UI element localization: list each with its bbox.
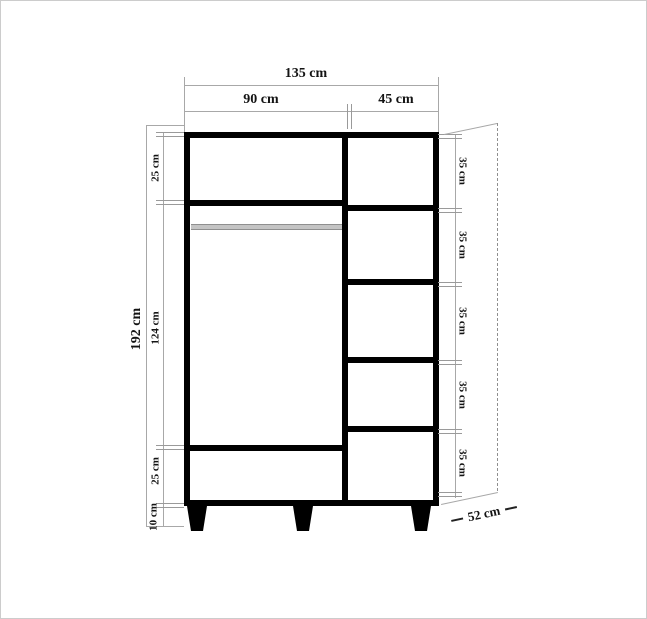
label-depth: 52 cm	[466, 503, 501, 525]
dim-tick	[156, 445, 184, 446]
dim-tick	[347, 104, 348, 129]
label-shelf-4: 35 cm	[457, 381, 468, 409]
leg-left	[187, 506, 207, 531]
dim-tick	[438, 433, 462, 434]
drawer-divider	[188, 445, 344, 451]
dim-tick	[438, 212, 462, 213]
wardrobe-dimension-diagram: 135 cm 90 cm 45 cm 192 cm 25 cm 124 cm 2…	[0, 0, 647, 619]
depth-dashed-line	[497, 123, 498, 491]
dim-tick	[438, 282, 462, 283]
dim-line-total-height	[146, 125, 147, 526]
leg-right	[411, 506, 431, 531]
depth-edge-bottom	[441, 492, 498, 505]
dim-tick	[438, 360, 462, 361]
top-shelf-divider	[188, 200, 344, 206]
dim-tick	[438, 496, 462, 497]
label-total-width: 135 cm	[246, 67, 366, 81]
label-shelf-5: 35 cm	[457, 449, 468, 477]
hanging-rod	[191, 224, 342, 230]
dim-tick	[438, 134, 462, 135]
label-depth-group: 52 cm	[450, 499, 519, 529]
label-top-compartment: 25 cm	[151, 154, 162, 182]
label-bottom-compartment: 25 cm	[151, 457, 162, 485]
dim-tick	[438, 492, 462, 493]
dim-line-section-widths	[184, 111, 439, 112]
shelf-divider-4	[346, 426, 435, 432]
dim-tick	[156, 204, 184, 205]
dim-tick	[438, 364, 462, 365]
dim-tick	[438, 208, 462, 209]
dim-tick	[351, 104, 352, 129]
dim-tick	[156, 449, 184, 450]
label-shelf-1: 35 cm	[457, 157, 468, 185]
label-middle-compartment: 124 cm	[151, 311, 162, 344]
dim-tick	[156, 507, 184, 508]
dim-tick	[438, 138, 462, 139]
label-right-section-width: 45 cm	[341, 93, 451, 107]
shelf-divider-1	[346, 205, 435, 211]
depth-dash-left	[451, 517, 463, 521]
label-left-section-width: 90 cm	[206, 93, 316, 107]
depth-edge-top	[444, 123, 497, 135]
label-shelf-3: 35 cm	[457, 307, 468, 335]
dim-tick	[438, 429, 462, 430]
dim-tick	[156, 136, 184, 137]
dim-tick	[438, 286, 462, 287]
leg-center	[293, 506, 313, 531]
shelf-divider-2	[346, 279, 435, 285]
label-legs-height: 10 cm	[149, 503, 160, 531]
dim-line-left-sections	[163, 132, 164, 526]
shelf-divider-3	[346, 357, 435, 363]
dim-tick	[156, 132, 184, 133]
dim-line-total-width	[184, 85, 439, 86]
ext-line-height-top	[146, 125, 184, 126]
depth-dash-right	[505, 506, 517, 510]
label-total-height: 192 cm	[130, 308, 144, 350]
dim-tick	[156, 503, 184, 504]
dim-tick	[156, 200, 184, 201]
label-shelf-2: 35 cm	[457, 231, 468, 259]
